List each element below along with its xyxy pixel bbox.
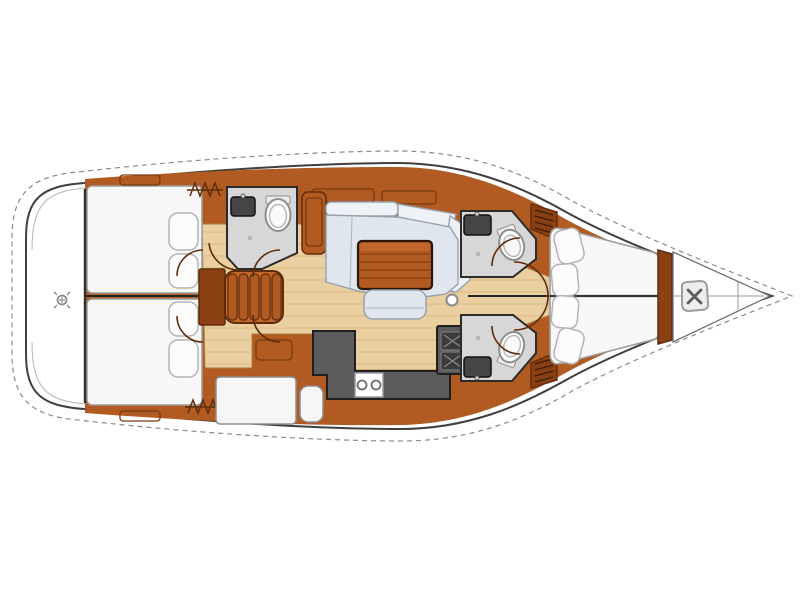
salon-table	[358, 241, 432, 289]
galley-locker-front	[216, 377, 296, 424]
forward-bulkhead	[658, 250, 672, 344]
washbasin-icon	[464, 357, 491, 377]
salon-bench	[364, 290, 426, 319]
windlass-icon	[682, 281, 708, 311]
anchor-locker	[673, 252, 770, 342]
aft-cabin-starboard	[87, 299, 202, 405]
washbasin-icon	[231, 197, 255, 216]
mast-post	[447, 295, 458, 306]
step-treads	[228, 274, 281, 320]
fridge-front	[300, 386, 323, 422]
washbasin-icon	[464, 215, 491, 235]
aft-cabin-port	[87, 186, 202, 293]
boat-floor-plan	[0, 0, 800, 600]
companionway-steps	[199, 269, 283, 325]
galley-sinks	[355, 373, 383, 397]
boat-floor-plan-image	[0, 0, 800, 600]
toilet-icon	[266, 196, 291, 231]
